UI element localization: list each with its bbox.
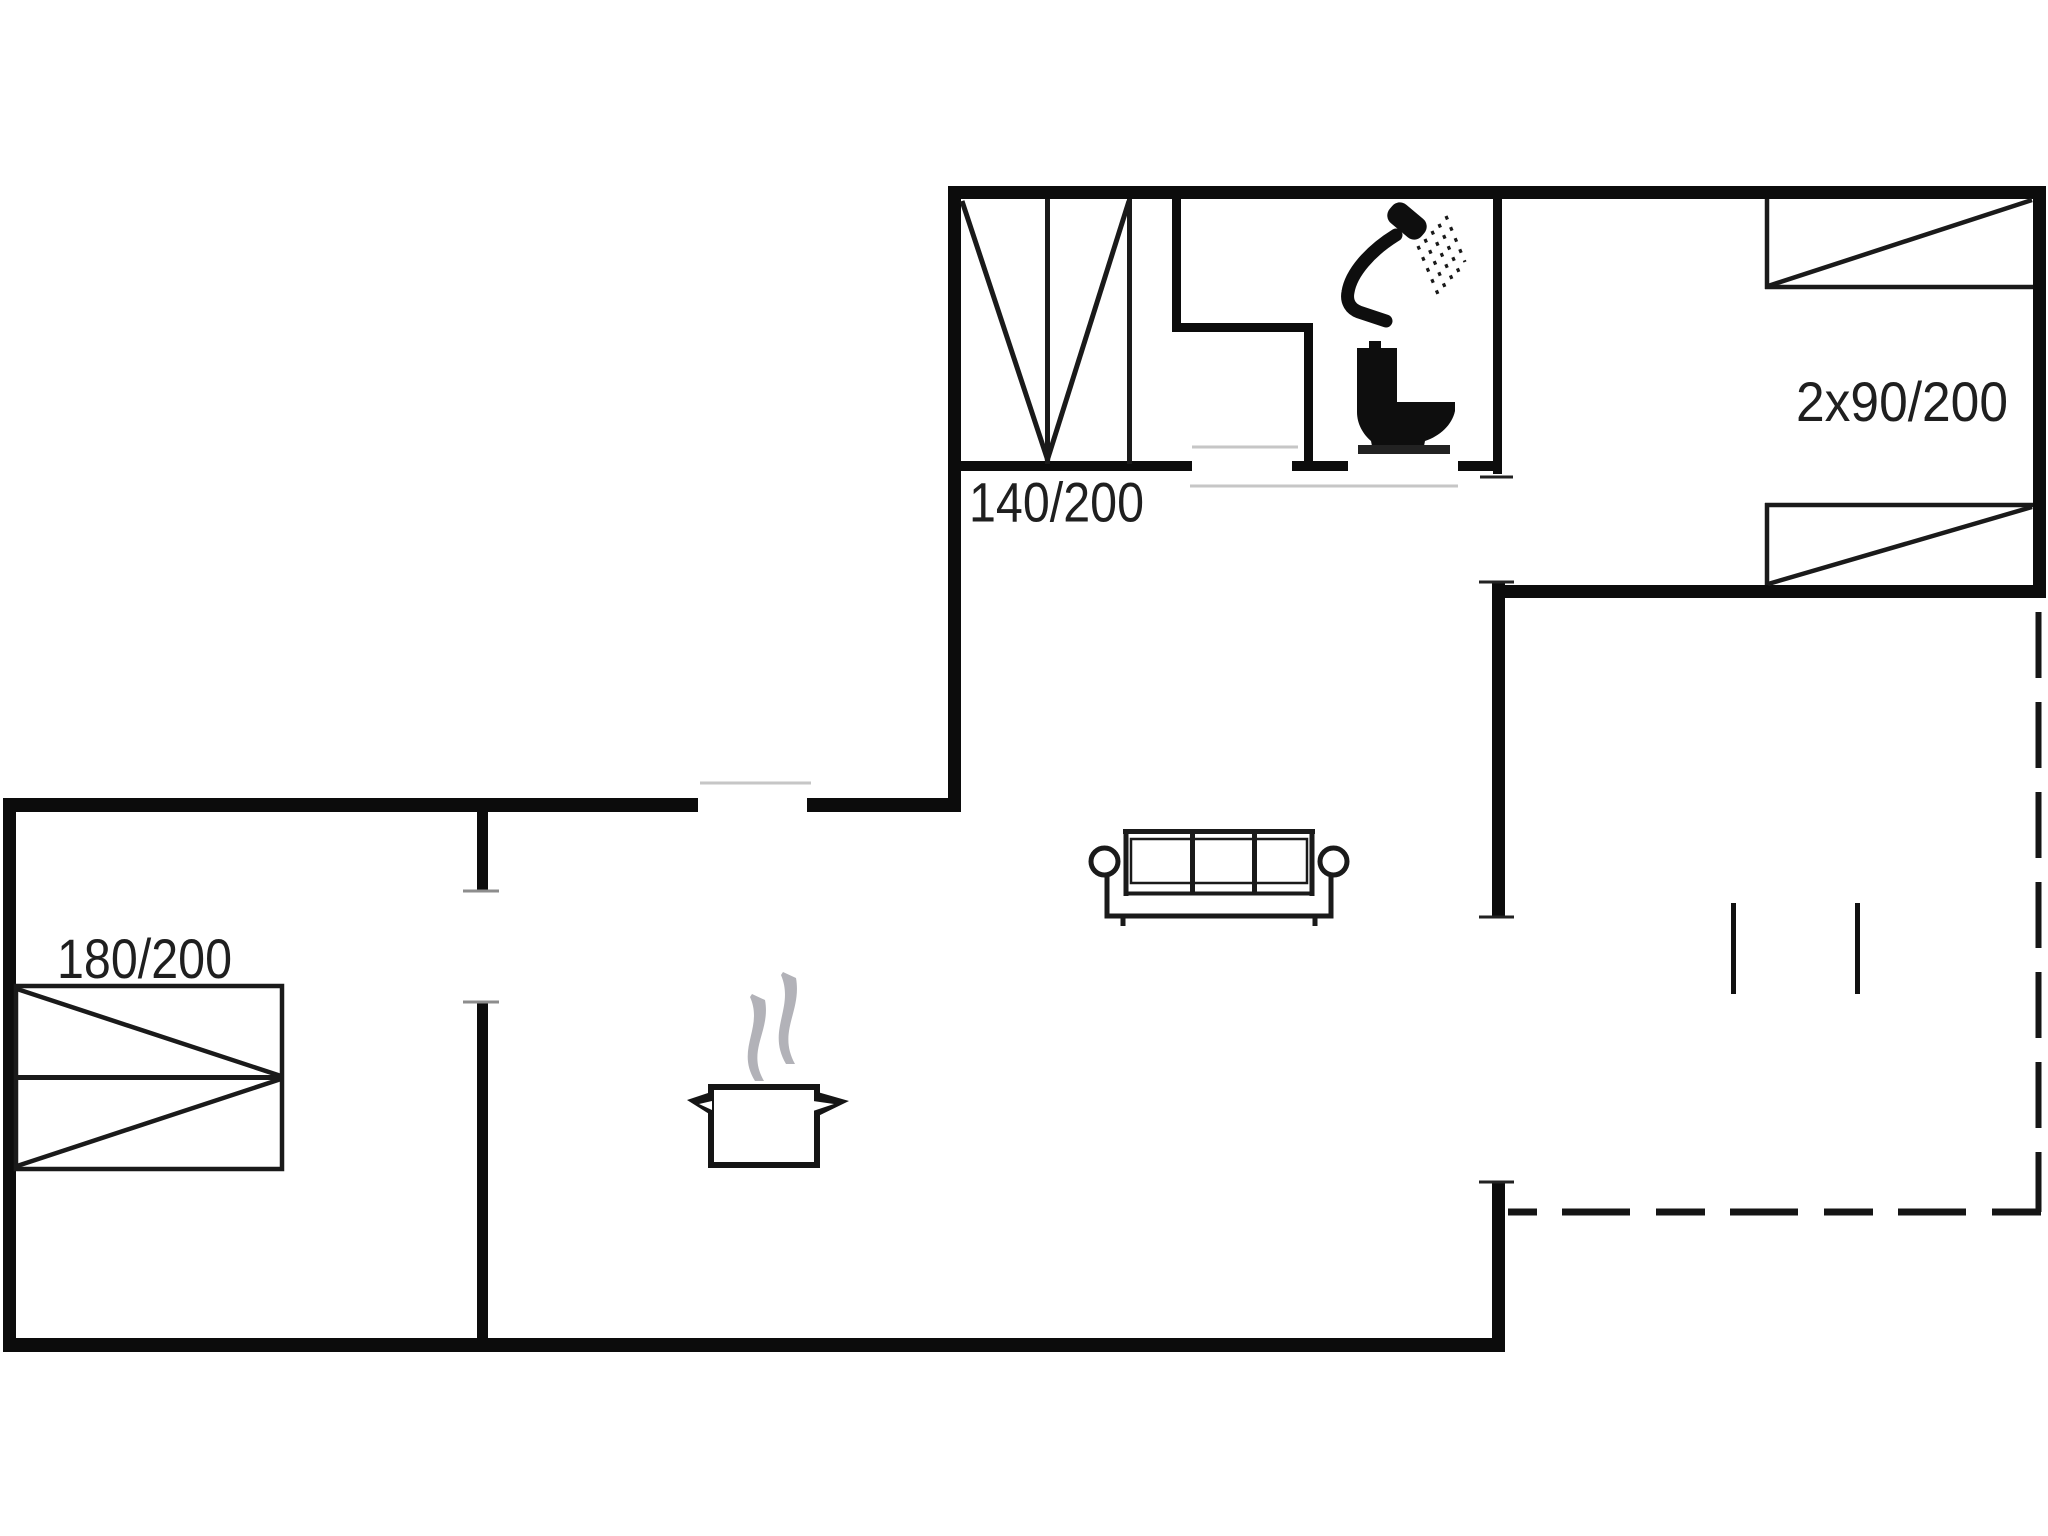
svg-text:180/200: 180/200	[57, 928, 232, 990]
svg-text:140/200: 140/200	[969, 472, 1144, 534]
svg-text:2x90/200: 2x90/200	[1796, 371, 2008, 433]
